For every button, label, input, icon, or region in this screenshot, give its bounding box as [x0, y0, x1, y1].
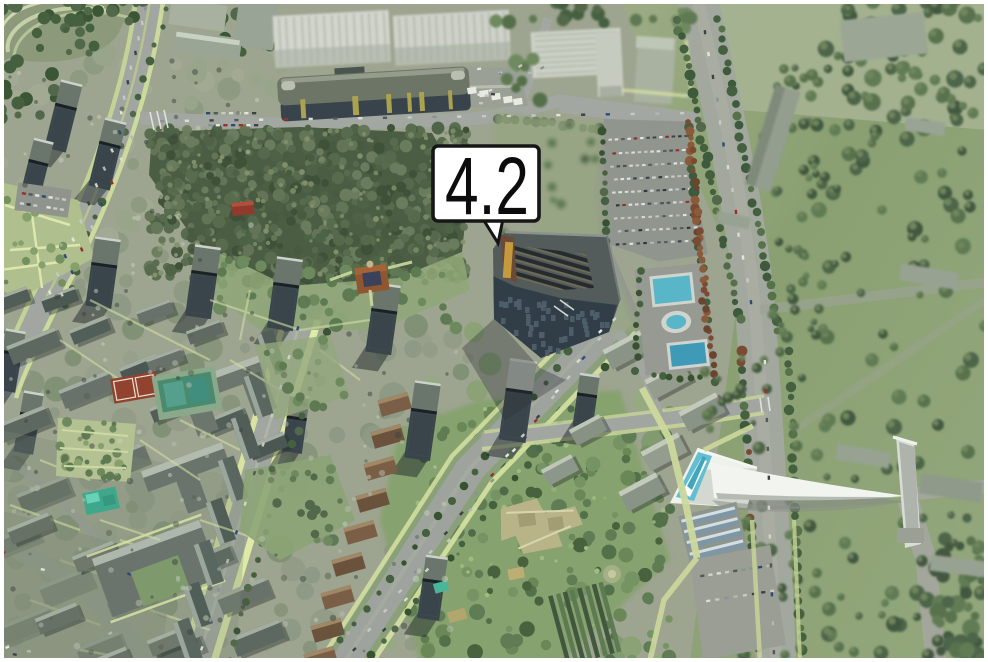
svg-text:4.2: 4.2	[445, 141, 529, 232]
